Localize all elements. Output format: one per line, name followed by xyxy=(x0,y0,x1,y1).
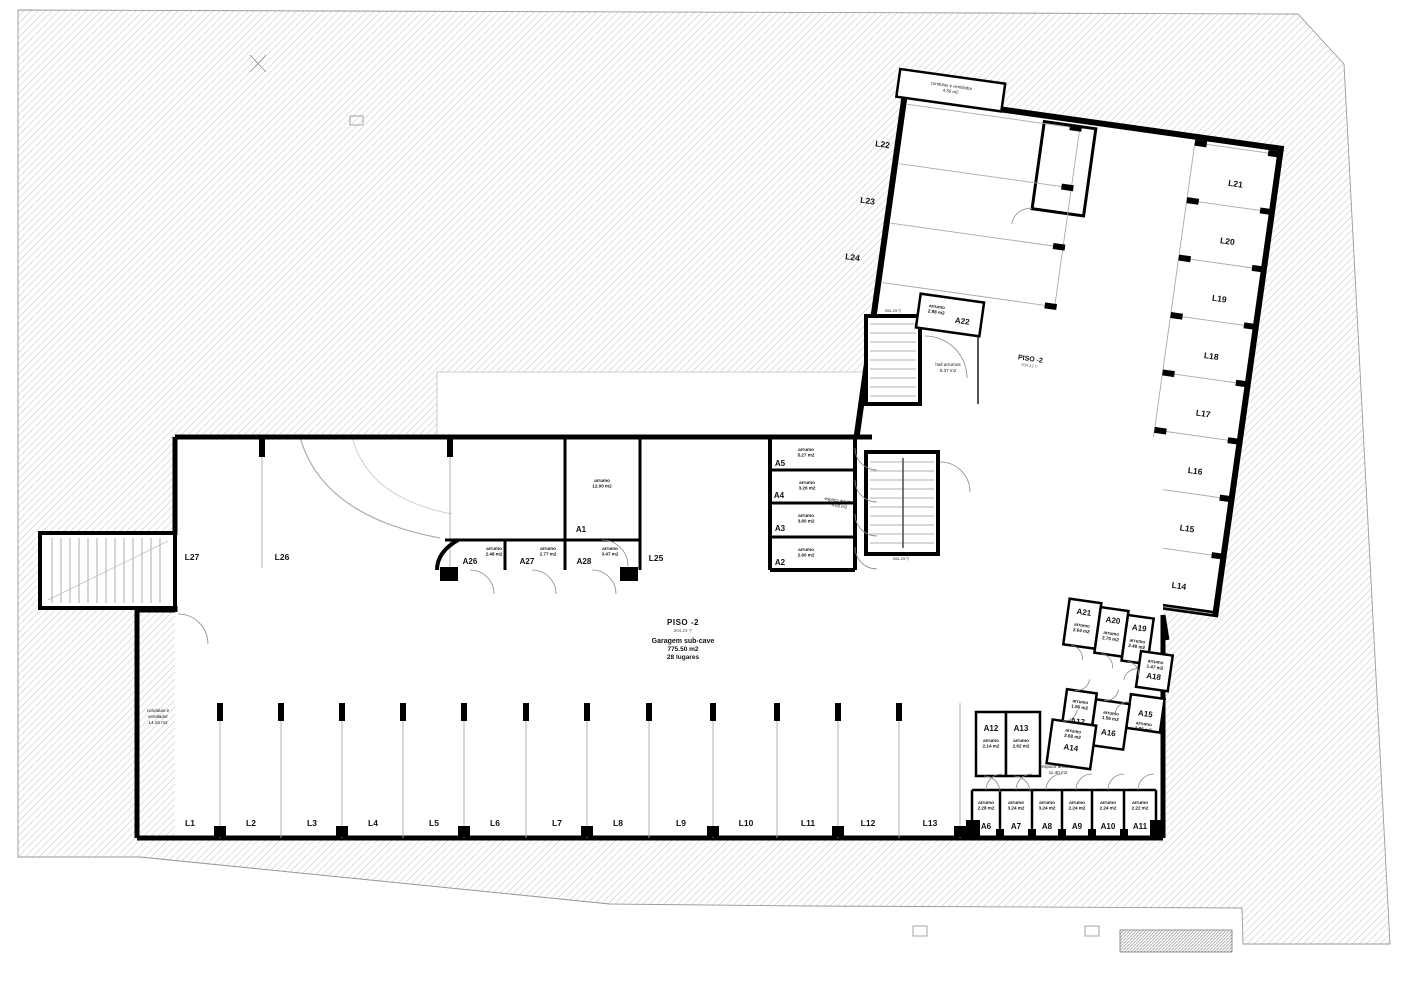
storage-room-area-A27: arrumo2.77 m2 xyxy=(540,546,557,557)
storage-room-label-A10: A10 xyxy=(1101,822,1116,831)
parking-spot-label-L5: L5 xyxy=(429,818,439,828)
parking-spot-label-L20: L20 xyxy=(1220,235,1236,247)
storage-room-label-A2: A2 xyxy=(775,558,786,567)
parking-spot-label-L27: L27 xyxy=(185,552,200,562)
plan-title-block: PISO -2 204.23 ▽ Garagem sub-cave 775.50… xyxy=(603,618,763,661)
storage-room-label-A1: A1 xyxy=(576,525,587,534)
storage-room-area-A6: arrumo2.28 m2 xyxy=(978,800,995,811)
parking-spot-label-L19: L19 xyxy=(1211,293,1227,305)
parking-spot-label-L17: L17 xyxy=(1195,408,1211,420)
floor-plan-canvas: L22L23L24L21L20L19L18L17L16L15L14conduta… xyxy=(0,0,1414,1000)
parking-spot-label-L12: L12 xyxy=(861,818,876,828)
elevation-marker: 204.23 ▽ xyxy=(603,628,763,634)
parking-spot-label-L21: L21 xyxy=(1228,178,1244,190)
shaft-notch xyxy=(1032,122,1096,216)
storage-room-label-A7: A7 xyxy=(1011,822,1022,831)
parking-spot-label-L10: L10 xyxy=(739,818,754,828)
storage-room-label-A5: A5 xyxy=(775,459,786,468)
storage-room-label-A4: A4 xyxy=(774,491,785,500)
storage-room-area-A1: arrumo12.00 m2 xyxy=(592,478,612,489)
storage-room-label-A6: A6 xyxy=(981,822,992,831)
parking-spot-label-L26: L26 xyxy=(275,552,290,562)
storage-room-area-A12: arrumo2.14 m2 xyxy=(983,738,1000,749)
storage-room-area-A4: arrumo3.26 m2 xyxy=(799,480,816,491)
excavation-wedge xyxy=(437,372,872,437)
stair-elevation-label-2: 204.23 ▽ xyxy=(885,308,902,313)
parking-spot-label-L4: L4 xyxy=(368,818,378,828)
stair-elevation-label: 204.23 ▽ xyxy=(893,556,910,561)
storage-room-label-A27: A27 xyxy=(520,557,535,566)
parking-spot-label-L22: L22 xyxy=(875,138,891,150)
parking-spot-label-L14: L14 xyxy=(1171,580,1187,592)
storage-room-label-A3: A3 xyxy=(775,524,786,533)
parking-spot-label-L11: L11 xyxy=(801,818,815,828)
room-A22: A22arrumo2.98 m2 xyxy=(916,294,984,337)
parking-spot-label-L18: L18 xyxy=(1203,350,1219,362)
storage-room-label-A26: A26 xyxy=(463,557,478,566)
parking-spot-label-L3: L3 xyxy=(307,818,317,828)
storage-room-area-A26: arrumo2.48 m2 xyxy=(486,546,503,557)
parking-spot-label-L9: L9 xyxy=(676,818,686,828)
storage-room-label-A13: A13 xyxy=(1014,724,1029,733)
storage-room-label-A28: A28 xyxy=(577,557,592,566)
storage-room-area-A3: arrumo3.60 m2 xyxy=(798,513,815,524)
parking-spot-label-L15: L15 xyxy=(1179,522,1195,534)
storage-room-area-A10: arrumo2.24 m2 xyxy=(1100,800,1117,811)
floor-label: PISO -2 xyxy=(603,618,763,627)
storage-room-area-A11: arrumo2.22 m2 xyxy=(1132,800,1149,811)
storage-room-area-A8: arrumo3.24 m2 xyxy=(1039,800,1056,811)
parking-spot-label-L13: L13 xyxy=(923,818,938,828)
storage-room-area-A2: arrumo2.60 m2 xyxy=(798,547,815,558)
storage-room-area-A13: arrumo2.62 m2 xyxy=(1013,738,1030,749)
storage-room-label-A11: A11 xyxy=(1133,822,1148,831)
storage-room-area-A28: arrumo3.47 m2 xyxy=(602,546,619,557)
storage-room-label-A9: A9 xyxy=(1072,822,1083,831)
storage-room-label-A12: A12 xyxy=(984,724,999,733)
parking-spot-label-L6: L6 xyxy=(490,818,500,828)
ducts-left-label: condutas eventilador14.15 m2 xyxy=(147,708,170,725)
parking-spot-label-L8: L8 xyxy=(613,818,623,828)
parking-spot-label-L25: L25 xyxy=(649,553,664,563)
garage-area: 775.50 m2 xyxy=(603,646,763,653)
left-stairwell xyxy=(40,533,175,608)
storage-room-area-A9: arrumo2.24 m2 xyxy=(1069,800,1086,811)
parking-spot-label-L2: L2 xyxy=(246,818,256,828)
garage-capacity: 28 lugares xyxy=(603,654,763,661)
parking-spot-label-L7: L7 xyxy=(552,818,562,828)
parking-spot-label-L24: L24 xyxy=(845,251,861,263)
parking-spot-label-L16: L16 xyxy=(1187,465,1203,477)
storage-room-area-A7: arrumo3.24 m2 xyxy=(1008,800,1025,811)
storage-room-area-A5: arrumo5.27 m2 xyxy=(798,447,815,458)
garage-name: Garagem sub-cave xyxy=(603,638,763,645)
parking-spot-label-L23: L23 xyxy=(860,195,876,207)
parking-spot-label-L1: L1 xyxy=(185,818,195,828)
storage-room-label-A8: A8 xyxy=(1042,822,1053,831)
floor-plan-drawing: L22L23L24L21L20L19L18L17L16L15L14conduta… xyxy=(0,0,1414,1000)
